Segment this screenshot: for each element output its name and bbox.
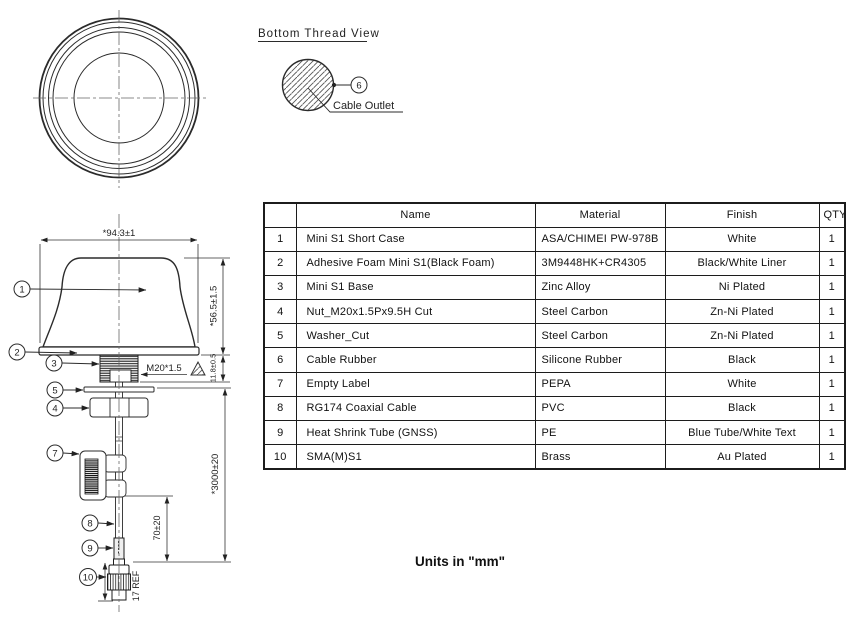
cell-finish: Au Plated [665,445,819,469]
cell-material: Brass [535,445,665,469]
dim-shrink-offset-label: 70±20 [152,516,162,541]
header-material: Material [535,203,665,227]
parts-table: Name Material Finish QTY 1 Mini S1 Short… [263,202,846,470]
cell-material: Zinc Alloy [535,275,665,299]
mold-triangle-symbol [191,362,205,375]
table-row: 8 RG174 Coaxial Cable PVC Black 1 [264,396,845,420]
table-row: 6 Cable Rubber Silicone Rubber Black 1 [264,348,845,372]
table-row: 1 Mini S1 Short Case ASA/CHIMEI PW-978B … [264,227,845,251]
cell-name: Empty Label [296,372,535,396]
cell-material: Steel Carbon [535,300,665,324]
balloon-1-number: 1 [19,285,24,296]
dim-connector-length-label: 17 REF [131,570,141,601]
callout-6-number: 6 [356,81,361,92]
thread-bore-circle [283,60,334,111]
cell-no: 6 [264,348,296,372]
cell-finish: White [665,227,819,251]
cell-qty: 1 [819,324,845,348]
cell-material: PEPA [535,372,665,396]
parts-table-header-row: Name Material Finish QTY [264,203,845,227]
top-view-centerlines [33,10,206,188]
cell-qty: 1 [819,348,845,372]
cell-finish: Zn-Ni Plated [665,300,819,324]
bottom-thread-view: Bottom Thread View 6 Cable Outlet [258,28,403,112]
cell-no: 7 [264,372,296,396]
cell-qty: 1 [819,396,845,420]
balloon-10-number: 10 [83,573,94,584]
table-row: 2 Adhesive Foam Mini S1(Black Foam) 3M94… [264,251,845,275]
dim-height-label: *56.5±1.5 [209,286,220,327]
label-wrap-top [104,455,126,472]
balloon-4-number: 4 [52,404,57,415]
cell-name: RG174 Coaxial Cable [296,396,535,420]
cell-no: 9 [264,421,296,445]
dim-width-label: *94.3±1 [103,228,136,239]
thread-spec-label: M20*1.5 [146,363,181,374]
cell-name: Mini S1 Base [296,275,535,299]
cell-finish: Black [665,396,819,420]
cell-material: PVC [535,396,665,420]
cell-no: 2 [264,251,296,275]
side-view [39,214,199,612]
bottom-thread-view-title: Bottom Thread View [258,28,380,40]
cell-material: ASA/CHIMEI PW-978B [535,227,665,251]
engineering-drawing-page: Bottom Thread View 6 Cable Outlet [0,0,850,623]
cable-outlet-label: Cable Outlet [333,100,394,112]
cell-name: SMA(M)S1 [296,445,535,469]
cell-material: Steel Carbon [535,324,665,348]
header-qty: QTY [819,203,845,227]
cell-finish: Blue Tube/White Text [665,421,819,445]
table-row: 5 Washer_Cut Steel Carbon Zn-Ni Plated 1 [264,324,845,348]
cell-no: 4 [264,300,296,324]
balloon-8-number: 8 [87,519,92,530]
header-no [264,203,296,227]
table-row: 7 Empty Label PEPA White 1 [264,372,845,396]
cell-qty: 1 [819,251,845,275]
cell-qty: 1 [819,300,845,324]
cell-qty: 1 [819,421,845,445]
cell-finish: Black/White Liner [665,251,819,275]
dim-cable-length-label: *3000±20 [210,454,221,495]
label-wrap-bottom [104,480,126,497]
cell-material: 3M9448HK+CR4305 [535,251,665,275]
cell-no: 8 [264,396,296,420]
balloon-5-number: 5 [52,386,57,397]
table-row: 10 SMA(M)S1 Brass Au Plated 1 [264,445,845,469]
table-row: 4 Nut_M20x1.5Px9.5H Cut Steel Carbon Zn-… [264,300,845,324]
cell-no: 5 [264,324,296,348]
cell-no: 10 [264,445,296,469]
cell-name: Cable Rubber [296,348,535,372]
header-finish: Finish [665,203,819,227]
balloon-9-number: 9 [87,544,92,555]
cell-qty: 1 [819,445,845,469]
units-note: Units in "mm" [380,554,540,569]
table-row: 9 Heat Shrink Tube (GNSS) PE Blue Tube/W… [264,421,845,445]
thread-cable-notch [110,370,131,382]
cell-qty: 1 [819,372,845,396]
cell-finish: Zn-Ni Plated [665,324,819,348]
cell-no: 3 [264,275,296,299]
cell-name: Mini S1 Short Case [296,227,535,251]
cell-name: Nut_M20x1.5Px9.5H Cut [296,300,535,324]
header-name: Name [296,203,535,227]
cell-finish: White [665,372,819,396]
cell-name: Heat Shrink Tube (GNSS) [296,421,535,445]
cell-material: PE [535,421,665,445]
top-view [33,10,206,188]
cell-finish: Black [665,348,819,372]
cell-material: Silicone Rubber [535,348,665,372]
label-print-block [85,459,98,494]
balloon-3-number: 3 [51,359,56,370]
cell-finish: Ni Plated [665,275,819,299]
balloon-7-number: 7 [52,449,57,460]
cell-qty: 1 [819,275,845,299]
cell-no: 1 [264,227,296,251]
cell-name: Washer_Cut [296,324,535,348]
cell-qty: 1 [819,227,845,251]
table-row: 3 Mini S1 Base Zinc Alloy Ni Plated 1 [264,275,845,299]
balloon-2-number: 2 [14,348,19,359]
dim-thread-height-label: 11.8±0.5 [209,354,218,383]
cell-name: Adhesive Foam Mini S1(Black Foam) [296,251,535,275]
